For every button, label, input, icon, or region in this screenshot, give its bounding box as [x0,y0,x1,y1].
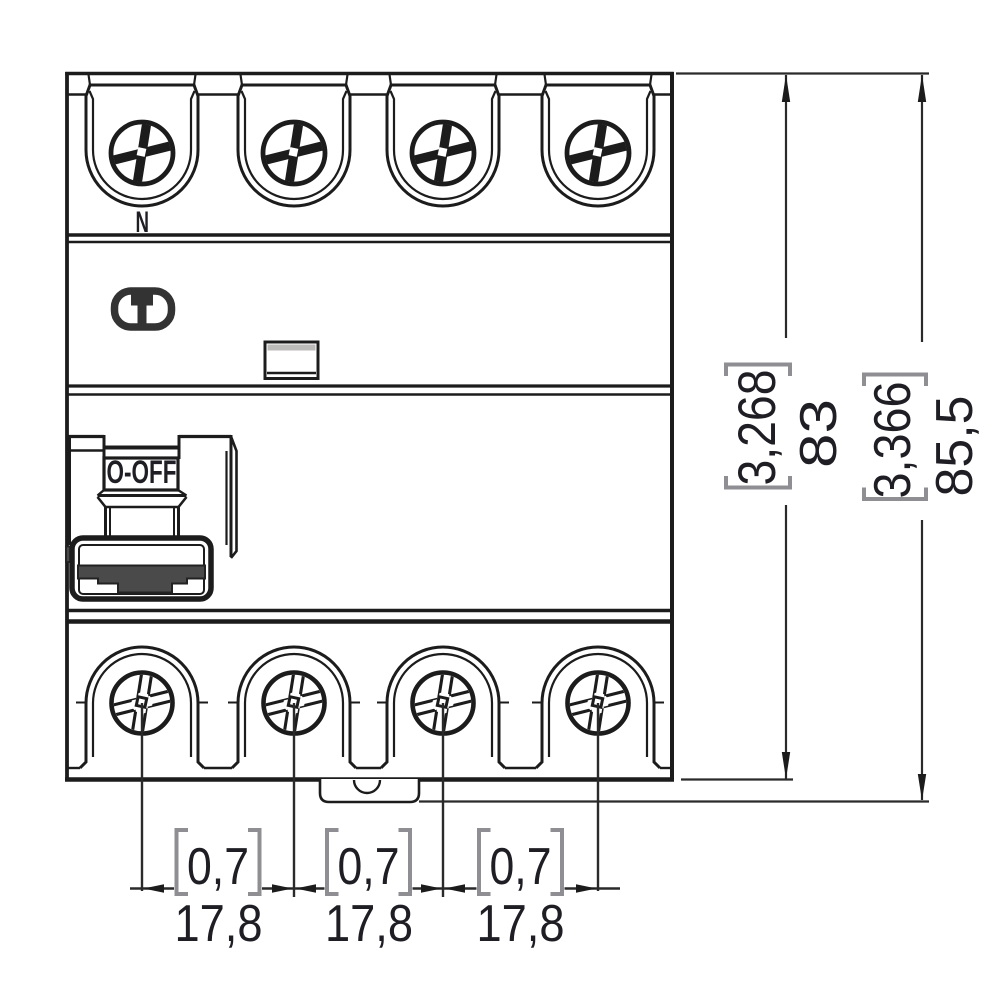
svg-text:0,7: 0,7 [187,838,249,896]
svg-text:17,8: 17,8 [325,895,413,953]
svg-text:17,8: 17,8 [175,895,263,953]
svg-text:3,268: 3,268 [728,370,787,486]
svg-text:N: N [136,206,150,239]
svg-text:17,8: 17,8 [477,895,565,953]
svg-text:O-OFF: O-OFF [107,454,177,490]
svg-text:85,5: 85,5 [926,396,984,497]
svg-text:0,7: 0,7 [490,838,552,896]
svg-text:0,7: 0,7 [338,838,400,896]
svg-text:3,366: 3,366 [864,382,922,499]
svg-text:83: 83 [790,399,848,468]
